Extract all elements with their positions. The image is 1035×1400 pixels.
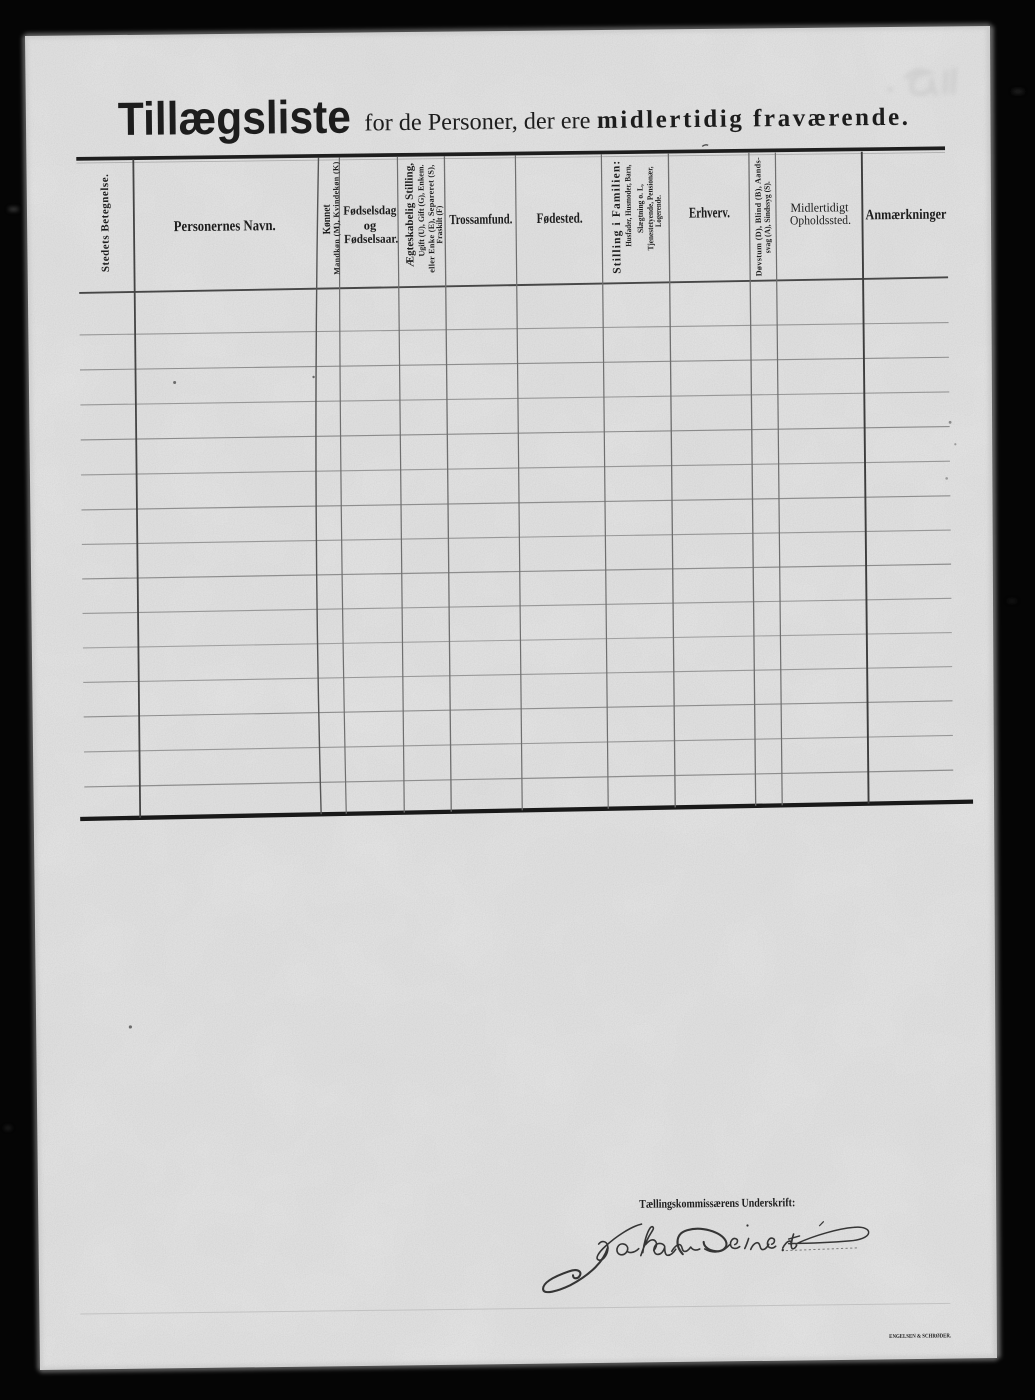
svg-text:Husfader, Husmoder, Barn,: Husfader, Husmoder, Barn, [623, 165, 633, 247]
svg-text:og: og [364, 218, 377, 232]
svg-text:Trossamfund.: Trossamfund. [449, 212, 512, 228]
svg-text:Ugift (U), Gift (G), Enkem.: Ugift (U), Gift (G), Enkem. [416, 165, 426, 257]
svg-text:Opholdssted.: Opholdssted. [790, 213, 851, 228]
svg-text:Fødested.: Fødested. [537, 211, 583, 227]
svg-text:Mandkøn (M), Kvindekøn (K): Mandkøn (M), Kvindekøn (K) [331, 161, 341, 274]
svg-text:Logerende.: Logerende. [654, 195, 663, 227]
svg-text:Tillægsliste: Tillægsliste [118, 91, 352, 145]
svg-text:Tællingskommissærens Underskri: Tællingskommissærens Underskrift: [639, 1195, 795, 1211]
svg-text:ENGELSEN & SCHRØDER.: ENGELSEN & SCHRØDER. [889, 1333, 952, 1340]
svg-text:midlertidig fraværende.: midlertidig fraværende. [597, 104, 908, 134]
svg-text:Personernes Navn.: Personernes Navn. [174, 218, 276, 235]
svg-text:Fraskilt (F): Fraskilt (F) [435, 205, 444, 243]
svg-text:Anmærkninger: Anmærkninger [865, 207, 947, 224]
svg-text:Ægteskabelig Stilling,: Ægteskabelig Stilling, [403, 163, 416, 267]
svg-text:Erhverv.: Erhverv. [689, 205, 730, 221]
svg-text:svag (A), Sindssyg (S).: svag (A), Sindssyg (S). [763, 181, 773, 253]
svg-text:Slægtning o. L,: Slægtning o. L, [636, 184, 646, 233]
svg-text:Stedets Betegnelse.: Stedets Betegnelse. [99, 174, 112, 272]
svg-text:Fødselsaar.: Fødselsaar. [344, 232, 398, 247]
svg-text:Fødselsdag: Fødselsdag [343, 203, 397, 218]
svg-text:Stilling i Familien:: Stilling i Familien: [610, 161, 623, 274]
svg-text:for de Personer, der ere: for de Personer, der ere [364, 108, 590, 136]
